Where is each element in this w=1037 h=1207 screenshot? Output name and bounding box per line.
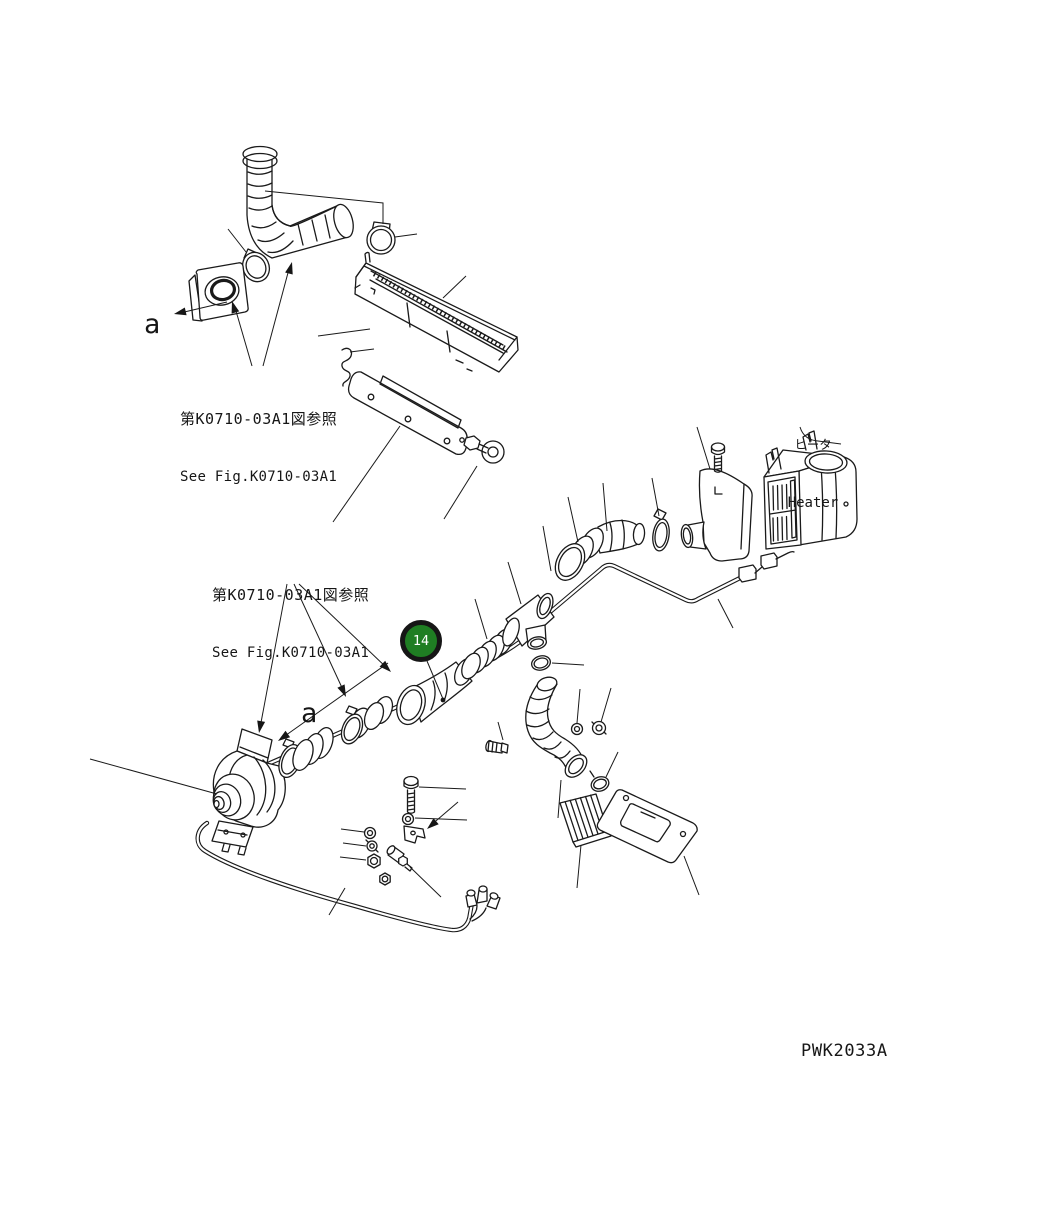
vent-mount-plate <box>597 790 697 863</box>
s-hose-screw <box>485 740 508 753</box>
blower-assembly <box>209 729 286 855</box>
hose-clamp-circle <box>367 222 395 254</box>
part-callout-14-number: 14 <box>413 633 429 649</box>
flex-hose-assembly-top <box>189 147 357 322</box>
heater-label-jp: ヒータ <box>778 437 848 453</box>
ref-note-mid: 第K0710-03A1図参照 See Fig.K0710-03A1 <box>212 546 369 682</box>
defroster-duct-upper <box>355 252 518 372</box>
drawing-code: PWK2033A <box>801 1041 888 1062</box>
fastener-group <box>365 777 426 886</box>
heater-elbow-hose <box>549 509 671 585</box>
bracket-arrow <box>427 802 458 829</box>
ref-note-mid-jp: 第K0710-03A1図参照 <box>212 586 369 605</box>
parts-diagram-page: 第K0710-03A1図参照 See Fig.K0710-03A1 第K0710… <box>0 0 1037 1207</box>
bolt-washer-top <box>464 436 504 463</box>
ref-note-top: 第K0710-03A1図参照 See Fig.K0710-03A1 <box>180 370 337 506</box>
heater-label: ヒータ Heater <box>778 397 848 532</box>
ref-note-mid-en: See Fig.K0710-03A1 <box>212 645 369 663</box>
defroster-duct-lower <box>349 372 468 455</box>
view-label-a-top: a <box>144 308 160 342</box>
heater-inlet-adapter <box>680 469 752 561</box>
diagram-line-art <box>0 0 1037 1207</box>
ref-note-top-jp: 第K0710-03A1図参照 <box>180 410 337 429</box>
small-washers <box>572 722 607 735</box>
part-callout-14[interactable]: 14 <box>400 620 442 662</box>
heater-mount-bolt <box>712 443 725 472</box>
ref-note-top-en: See Fig.K0710-03A1 <box>180 469 337 487</box>
view-label-a-mid: a <box>301 697 317 731</box>
heater-label-en: Heater <box>778 495 848 513</box>
